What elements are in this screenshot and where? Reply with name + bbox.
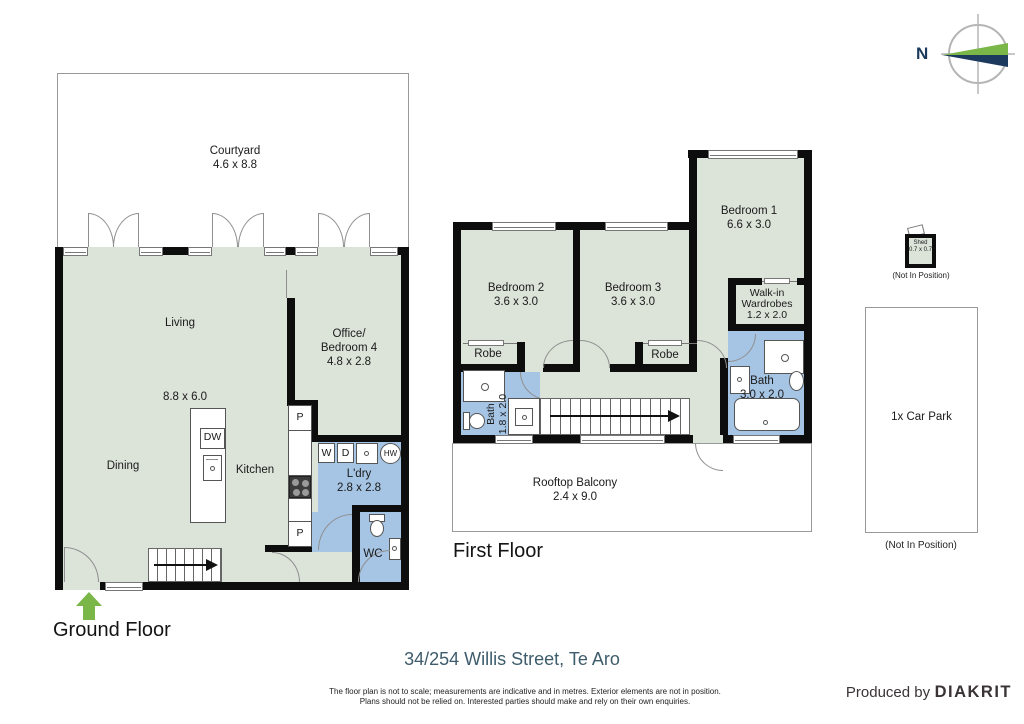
window xyxy=(370,247,398,256)
window xyxy=(580,435,665,444)
window xyxy=(105,582,143,591)
robe-right-label: Robe xyxy=(638,348,692,362)
door-leaf xyxy=(88,213,89,247)
shed-label: Shed 0.7 x 0.7 xyxy=(905,240,936,254)
sliding-door xyxy=(468,340,504,346)
plan-graphic: 1.2 x 2.0 xyxy=(729,310,805,321)
plan-graphic xyxy=(83,605,95,620)
wall-segment xyxy=(287,298,295,405)
plan-graphic: Bedroom 3 xyxy=(578,281,688,295)
burner-dot xyxy=(302,489,309,496)
plan-graphic: Bedroom 1 xyxy=(695,204,803,218)
robe-left-label: Robe xyxy=(463,347,513,361)
window xyxy=(139,247,163,256)
kitchen-bench xyxy=(288,430,312,476)
plan-graphic: 3.0 x 2.0 xyxy=(722,388,802,402)
plan-graphic: 2.4 x 9.0 xyxy=(495,490,655,504)
plan-graphic: 4.6 x 8.8 xyxy=(160,158,310,172)
carpark-label: 1x Car Park xyxy=(865,410,978,424)
bedroom2-label: Bedroom 2 3.6 x 3.0 xyxy=(461,281,571,309)
stair-direction-arrow xyxy=(550,415,670,417)
plan-graphic xyxy=(76,592,102,606)
plan-graphic: Rooftop Balcony xyxy=(495,476,655,490)
stair-direction-arrow xyxy=(206,559,218,571)
balcony-label: Rooftop Balcony 2.4 x 9.0 xyxy=(495,476,655,504)
produced-by-text: Produced by xyxy=(846,684,930,701)
kitchen-bench xyxy=(288,498,312,522)
plan-graphic: 6.6 x 3.0 xyxy=(695,218,803,232)
burner-dot xyxy=(292,479,299,486)
laundry-label: L'dry 2.8 x 2.8 xyxy=(320,467,398,495)
door-threshold xyxy=(212,247,264,255)
door-threshold xyxy=(318,247,370,255)
stair-direction-arrow xyxy=(154,564,208,566)
wall-segment xyxy=(312,435,409,442)
shed-note: (Not In Position) xyxy=(865,271,977,280)
wall-segment xyxy=(728,278,762,285)
plan-graphic: L'dry xyxy=(320,467,398,481)
window xyxy=(264,247,286,256)
plan-graphic: Office/ xyxy=(303,327,395,341)
window xyxy=(492,222,556,231)
compass-north-label: N xyxy=(916,44,928,64)
wall-segment xyxy=(55,247,63,590)
window xyxy=(295,247,318,256)
pantry-label: P xyxy=(288,527,312,540)
toilet-bowl xyxy=(469,413,485,429)
sliding-door xyxy=(764,278,790,284)
producer-credit: Produced by DIAKRIT xyxy=(846,683,1012,702)
wall-segment xyxy=(797,278,804,285)
door-leaf xyxy=(206,459,218,460)
dishwasher-label: DW xyxy=(200,431,225,444)
wall-segment xyxy=(689,158,697,372)
plan-graphic: 2.8 x 2.8 xyxy=(320,481,398,495)
ground-floor-title: Ground Floor xyxy=(53,619,171,642)
carpark-note: (Not In Position) xyxy=(862,540,980,551)
burner-dot xyxy=(293,489,300,496)
disclaimer-line1: The floor plan is not to scale; measurem… xyxy=(225,687,825,696)
sliding-door xyxy=(648,340,682,346)
hw-label: HW xyxy=(380,449,401,459)
dining-label: Dining xyxy=(93,459,153,473)
window xyxy=(605,222,668,231)
door-leaf xyxy=(263,213,264,247)
wall-segment xyxy=(728,324,812,331)
courtyard-label: Courtyard 4.6 x 8.8 xyxy=(160,144,310,172)
wall-segment xyxy=(352,505,409,512)
plan-graphic: Bedroom 4 xyxy=(303,341,395,355)
burner-dot xyxy=(302,480,309,487)
window xyxy=(708,150,798,159)
address: 34/254 Willis Street, Te Aro xyxy=(312,649,712,670)
door-leaf xyxy=(64,547,65,582)
fixture-detail xyxy=(781,354,789,362)
wc-label: WC xyxy=(358,547,388,561)
bedroom3-label: Bedroom 3 3.6 x 3.0 xyxy=(578,281,688,309)
floorplan-canvas: Courtyard 4.6 x 8.8 xyxy=(0,0,1024,724)
kitchen-label: Kitchen xyxy=(222,463,288,477)
plan-graphic: 1.8 x 2.0 xyxy=(497,378,509,450)
plan-graphic: Courtyard xyxy=(160,144,310,158)
door-threshold xyxy=(693,435,723,443)
door-leaf xyxy=(369,213,370,247)
wall-segment xyxy=(517,342,525,372)
door-threshold xyxy=(88,247,139,255)
first-floor-title: First Floor xyxy=(453,540,543,563)
cooktop xyxy=(289,476,311,498)
window xyxy=(733,435,780,444)
pantry-label: P xyxy=(288,411,312,424)
fixture-detail xyxy=(763,420,768,425)
washer-label: W xyxy=(318,447,335,460)
plan-graphic: 3.6 x 3.0 xyxy=(578,295,688,309)
dryer-label: D xyxy=(337,447,354,460)
window xyxy=(63,247,88,256)
plan-graphic: Shed xyxy=(905,240,936,247)
door-leaf xyxy=(318,213,319,247)
plan-graphic: 0.7 x 0.7 xyxy=(905,247,936,254)
plan-graphic: Bath xyxy=(485,378,497,450)
wall-segment xyxy=(610,364,697,372)
living-dims: 8.8 x 6.0 xyxy=(150,390,220,404)
office-door-leaf xyxy=(286,270,287,298)
plan-graphic xyxy=(942,43,1008,55)
bathtub xyxy=(734,398,800,431)
fixture-detail xyxy=(522,415,527,420)
fixture-detail xyxy=(392,546,397,551)
plan-graphic: Bedroom 2 xyxy=(461,281,571,295)
wall-segment xyxy=(453,222,461,443)
office-label: Office/ Bedroom 4 4.8 x 2.8 xyxy=(303,327,395,369)
plan-graphic: Bath xyxy=(722,374,802,388)
plan-graphic: 4.8 x 2.8 xyxy=(303,355,395,369)
bath-main-label: Bath 3.0 x 2.0 xyxy=(722,374,802,402)
bedroom1-label: Bedroom 1 6.6 x 3.0 xyxy=(695,204,803,232)
entry-arrow xyxy=(76,592,102,620)
fixture-detail xyxy=(210,466,215,471)
bath-small-label: Bath 1.8 x 2.0 xyxy=(485,378,509,450)
plan-graphic: 3.6 x 3.0 xyxy=(461,295,571,309)
disclaimer-line2: Plans should not be relied on. Intereste… xyxy=(225,697,825,706)
door-threshold xyxy=(63,582,100,590)
door-leaf xyxy=(212,213,213,247)
window xyxy=(188,247,212,256)
fixture-detail xyxy=(364,451,369,456)
stair-direction-arrow xyxy=(668,410,680,422)
door-leaf xyxy=(138,213,139,247)
diakrit-logo: DIAKRIT xyxy=(935,683,1012,701)
toilet-bowl xyxy=(370,520,384,537)
walkin-label: Walk-in Wardrobes 1.2 x 2.0 xyxy=(729,288,805,321)
living-label: Living xyxy=(150,316,210,330)
wall-segment xyxy=(401,247,409,590)
wall-segment xyxy=(804,150,812,443)
